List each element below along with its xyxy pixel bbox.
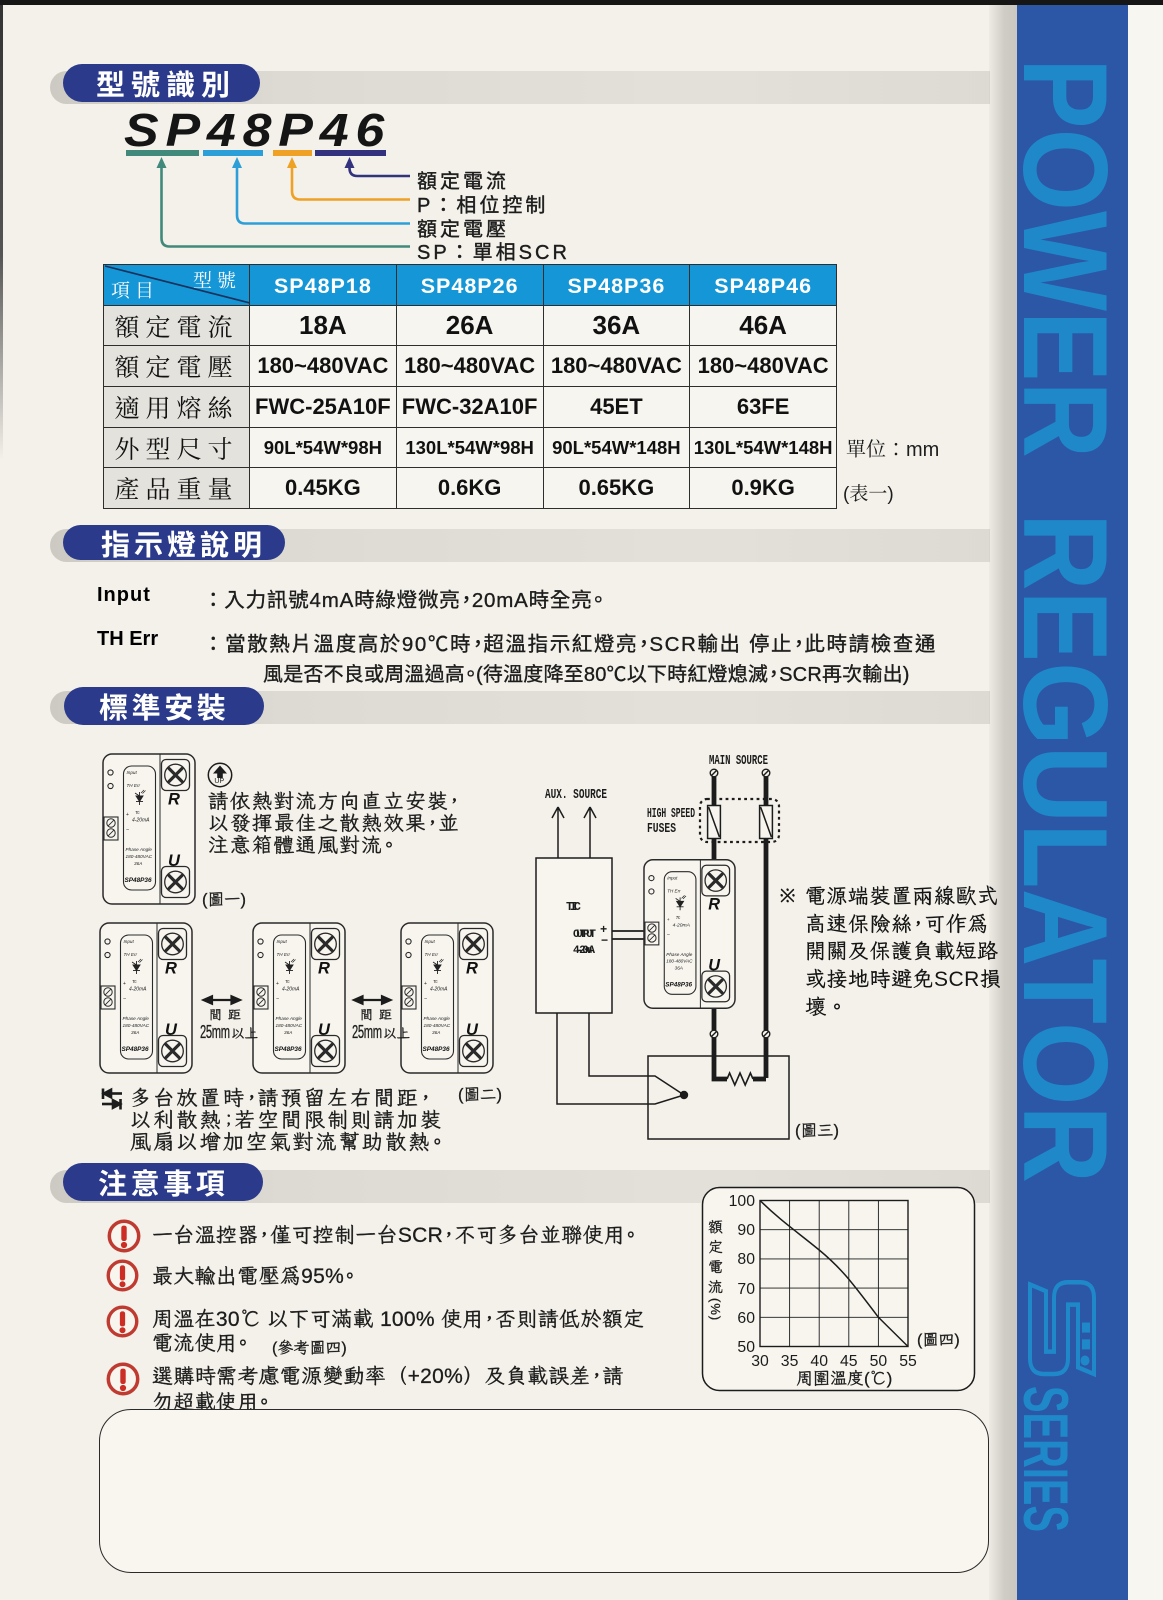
svg-text:SERIES: SERIES bbox=[1017, 1386, 1080, 1532]
svg-text:FUSES: FUSES bbox=[647, 822, 676, 837]
svg-text:HIGH SPEED: HIGH SPEED bbox=[647, 807, 695, 822]
svg-text:100: 100 bbox=[729, 1193, 756, 1210]
svg-text:60: 60 bbox=[737, 1310, 755, 1327]
svg-text:OUTPUT: OUTPUT bbox=[573, 929, 596, 941]
svg-text:80: 80 bbox=[737, 1251, 755, 1268]
svg-text:55: 55 bbox=[899, 1353, 917, 1370]
svg-text:REGULATOR: REGULATOR bbox=[1017, 513, 1128, 1183]
svg-text:TIC: TIC bbox=[566, 900, 581, 914]
svg-text:MAIN SOURCE: MAIN SOURCE bbox=[709, 754, 768, 769]
svg-text:70: 70 bbox=[737, 1281, 755, 1298]
svg-text:AUX. SOURCE: AUX. SOURCE bbox=[545, 788, 607, 803]
svg-text:30: 30 bbox=[751, 1353, 769, 1370]
svg-text:90: 90 bbox=[737, 1222, 755, 1239]
svg-text:UP: UP bbox=[214, 778, 224, 785]
svg-text:4-20mA: 4-20mA bbox=[573, 945, 595, 957]
svg-text:POWER: POWER bbox=[1017, 58, 1128, 458]
svg-text:−: − bbox=[601, 934, 608, 948]
